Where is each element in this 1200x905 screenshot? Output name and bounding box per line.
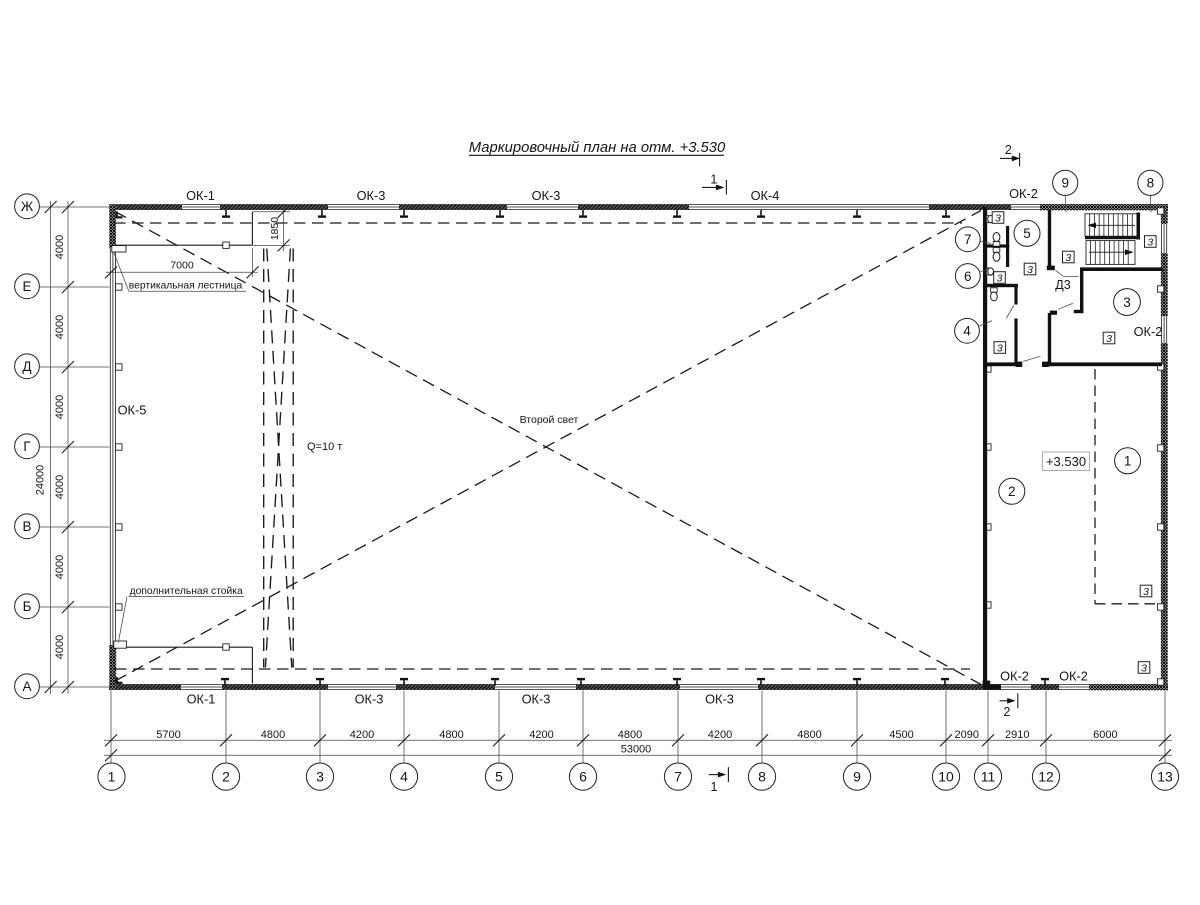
svg-text:3: 3: [316, 769, 324, 785]
svg-text:4000: 4000: [54, 475, 66, 499]
svg-text:А: А: [22, 679, 31, 694]
svg-text:В: В: [22, 519, 31, 534]
svg-text:9: 9: [853, 769, 861, 785]
svg-text:ОК-3: ОК-3: [705, 692, 734, 707]
svg-text:Д3: Д3: [1055, 278, 1070, 292]
svg-text:3: 3: [1106, 333, 1112, 345]
svg-text:ОК-3: ОК-3: [357, 188, 386, 203]
svg-text:7: 7: [964, 232, 972, 247]
svg-text:5700: 5700: [156, 729, 180, 741]
svg-text:53000: 53000: [621, 744, 652, 756]
svg-text:1: 1: [108, 769, 116, 785]
svg-text:4200: 4200: [529, 729, 553, 741]
svg-text:7: 7: [674, 769, 682, 785]
svg-text:3: 3: [997, 342, 1003, 354]
svg-text:Ж: Ж: [21, 199, 34, 214]
svg-text:8: 8: [1147, 176, 1155, 191]
svg-text:3: 3: [1123, 295, 1131, 310]
svg-text:4800: 4800: [439, 729, 463, 741]
svg-text:5: 5: [1023, 226, 1031, 241]
svg-text:6: 6: [579, 769, 587, 785]
svg-text:3: 3: [997, 272, 1003, 284]
svg-text:1850: 1850: [269, 217, 281, 241]
svg-text:2: 2: [1008, 484, 1016, 499]
svg-text:6: 6: [964, 269, 972, 284]
svg-text:ОК-2: ОК-2: [1059, 669, 1088, 684]
svg-text:Б: Б: [23, 599, 32, 614]
svg-text:2: 2: [222, 769, 230, 785]
svg-text:8: 8: [758, 769, 766, 785]
svg-text:4000: 4000: [54, 235, 66, 259]
svg-text:4000: 4000: [54, 635, 66, 659]
svg-text:5: 5: [495, 769, 503, 785]
svg-text:9: 9: [1061, 176, 1069, 191]
svg-text:13: 13: [1157, 769, 1173, 785]
svg-text:3: 3: [995, 212, 1001, 224]
svg-text:Е: Е: [22, 279, 31, 294]
svg-text:4800: 4800: [618, 729, 642, 741]
svg-text:2910: 2910: [1005, 729, 1029, 741]
svg-text:ОК-2: ОК-2: [1000, 669, 1029, 684]
svg-text:3: 3: [1143, 586, 1149, 598]
svg-text:4500: 4500: [889, 729, 913, 741]
svg-text:4: 4: [963, 324, 971, 339]
svg-text:6000: 6000: [1093, 729, 1117, 741]
svg-text:2090: 2090: [955, 729, 979, 741]
svg-text:1: 1: [710, 173, 717, 187]
svg-text:10: 10: [938, 769, 954, 785]
svg-text:+3.530: +3.530: [1046, 454, 1086, 469]
svg-text:дополнительная стойка: дополнительная стойка: [130, 586, 243, 597]
svg-text:Q=10 т: Q=10 т: [307, 441, 342, 453]
svg-text:ОК-5: ОК-5: [118, 403, 147, 418]
svg-text:Маркировочный план на отм. +3.: Маркировочный план на отм. +3.530: [469, 140, 726, 156]
svg-text:ОК-3: ОК-3: [532, 188, 561, 203]
svg-text:ОК-3: ОК-3: [522, 692, 551, 707]
svg-text:1: 1: [1124, 454, 1132, 469]
svg-text:3: 3: [1027, 264, 1033, 276]
svg-text:3: 3: [1065, 252, 1071, 264]
svg-text:Второй свет: Второй свет: [520, 414, 579, 426]
svg-text:4000: 4000: [54, 555, 66, 579]
svg-text:4: 4: [400, 769, 408, 785]
svg-text:7000: 7000: [170, 260, 194, 272]
svg-text:ОК-1: ОК-1: [186, 188, 215, 203]
svg-text:ОК-3: ОК-3: [355, 692, 384, 707]
svg-text:ОК-2: ОК-2: [1009, 186, 1038, 201]
svg-text:вертикальная лестница: вертикальная лестница: [129, 281, 243, 292]
svg-text:4800: 4800: [797, 729, 821, 741]
svg-text:4000: 4000: [54, 395, 66, 419]
svg-text:ОК-4: ОК-4: [751, 188, 780, 203]
svg-text:Д: Д: [22, 359, 31, 374]
svg-text:1: 1: [711, 780, 718, 794]
svg-text:ОК-2: ОК-2: [1134, 324, 1163, 339]
svg-text:3: 3: [1141, 662, 1147, 674]
svg-text:2: 2: [1005, 143, 1012, 157]
svg-text:24000: 24000: [35, 465, 47, 496]
svg-text:11: 11: [981, 769, 996, 785]
svg-text:4000: 4000: [54, 315, 66, 339]
svg-text:12: 12: [1038, 769, 1054, 785]
svg-text:Г: Г: [23, 439, 31, 454]
svg-text:ОК-1: ОК-1: [187, 692, 216, 707]
svg-text:4200: 4200: [350, 729, 374, 741]
svg-text:4800: 4800: [261, 729, 285, 741]
svg-text:2: 2: [1003, 705, 1010, 719]
svg-text:3: 3: [1147, 236, 1153, 248]
svg-text:4200: 4200: [708, 729, 732, 741]
